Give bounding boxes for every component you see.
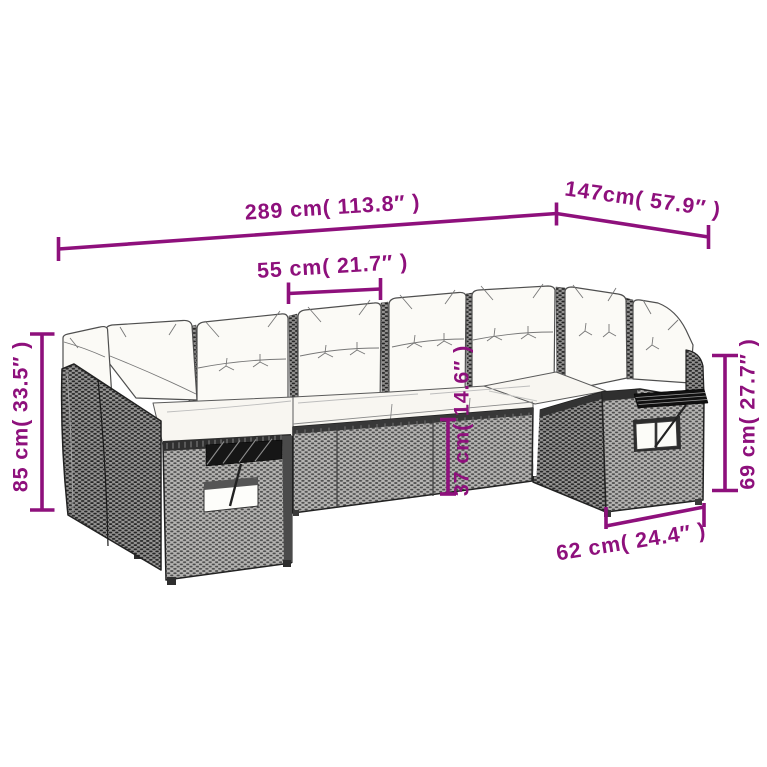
- svg-text:85 cm( 33.5″ ): 85 cm( 33.5″ ): [8, 341, 32, 492]
- svg-text:37 cm( 14.6″ ): 37 cm( 14.6″ ): [449, 345, 473, 496]
- svg-text:69 cm( 27.7″ ): 69 cm( 27.7″ ): [735, 338, 759, 489]
